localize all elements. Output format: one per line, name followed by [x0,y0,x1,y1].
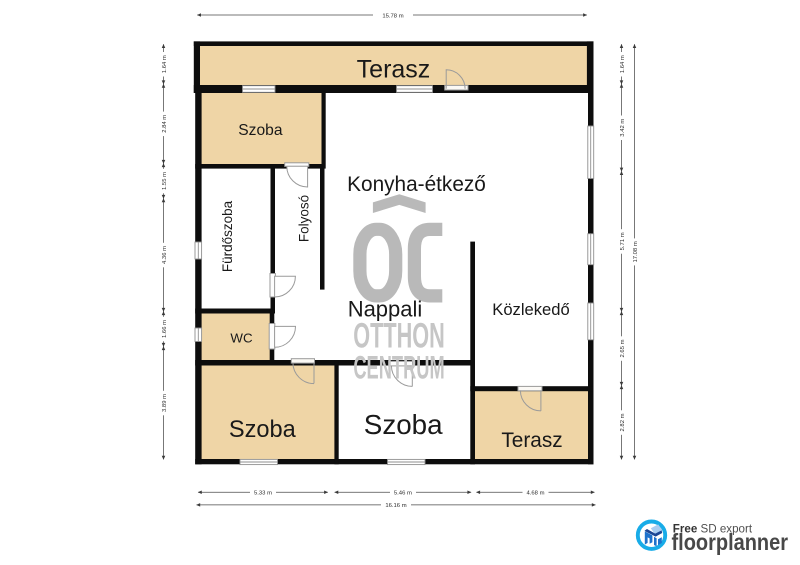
svg-text:3.42 m: 3.42 m [620,119,626,137]
svg-text:17.08 m: 17.08 m [633,241,639,262]
svg-text:1.64 m: 1.64 m [620,55,626,73]
svg-text:floorplanner: floorplanner [672,529,789,555]
svg-text:Szoba: Szoba [229,417,297,443]
svg-text:5.33 m: 5.33 m [254,491,272,497]
svg-text:16.16 m: 16.16 m [385,503,406,509]
svg-text:Szoba: Szoba [238,122,283,139]
svg-text:Nappali: Nappali [348,297,423,322]
svg-text:Fürdőszoba: Fürdőszoba [220,200,235,272]
svg-text:3.89 m: 3.89 m [162,394,168,412]
svg-text:2.82 m: 2.82 m [620,413,626,431]
svg-text:Folyosó: Folyosó [297,195,312,242]
svg-text:2.84 m: 2.84 m [162,115,168,133]
svg-text:4.68 m: 4.68 m [526,491,544,497]
svg-text:Szoba: Szoba [364,409,443,440]
svg-text:1.64 m: 1.64 m [162,55,168,73]
svg-text:CENTRUM: CENTRUM [353,349,444,386]
svg-text:1.66 m: 1.66 m [162,320,168,338]
svg-text:Közlekedő: Közlekedő [492,300,570,319]
svg-text:2.65 m: 2.65 m [620,339,626,357]
svg-text:5.46 m: 5.46 m [394,491,412,497]
svg-text:Konyha-étkező: Konyha-étkező [347,173,486,196]
svg-text:Terasz: Terasz [501,429,562,452]
svg-text:15.78 m: 15.78 m [382,13,403,19]
svg-text:1.55 m: 1.55 m [162,172,168,190]
svg-text:Terasz: Terasz [357,56,431,84]
svg-text:WC: WC [230,331,253,346]
svg-text:5.71 m: 5.71 m [620,232,626,250]
svg-text:4.36 m: 4.36 m [162,246,168,264]
